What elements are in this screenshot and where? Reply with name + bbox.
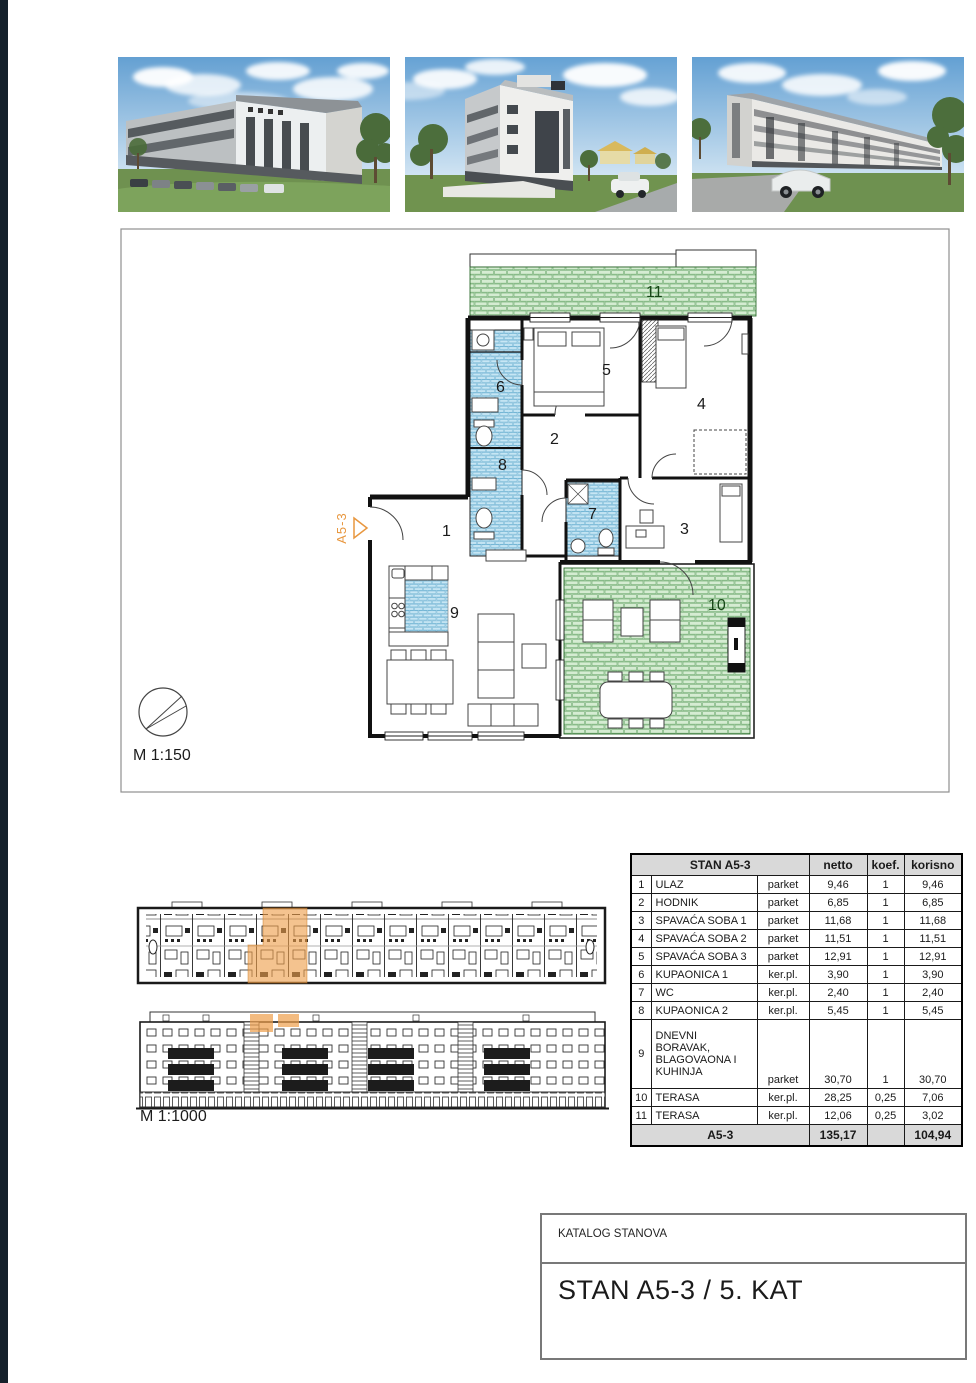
- building-render-photo-3: [692, 57, 964, 212]
- room-label-8: 8: [498, 457, 507, 474]
- total-korisno: 104,94: [904, 1125, 962, 1147]
- table-row: 8KUPAONICA 2ker.pl.5,4515,45: [631, 1002, 962, 1020]
- building-render-photo-2: [405, 57, 677, 212]
- unit-marker-label: A5-3: [334, 512, 349, 543]
- col-koef: koef.: [867, 854, 904, 876]
- page-edge-bar: [0, 0, 8, 1383]
- render-2-scene: [405, 57, 677, 212]
- area-table: STAN A5-3 netto koef. korisno 1ULAZparke…: [630, 853, 963, 1147]
- room-label-9: 9: [450, 605, 459, 622]
- table-row: 9DNEVNI BORAVAK, BLAGOVAONA I KUHINJApar…: [631, 1020, 962, 1089]
- table-row: 2HODNIKparket6,8516,85: [631, 894, 962, 912]
- room-label-11: 11: [646, 284, 663, 301]
- table-row: 6KUPAONICA 1ker.pl.3,9013,90: [631, 966, 962, 984]
- table-row: 11TERASAker.pl.12,060,253,02: [631, 1107, 962, 1125]
- render-1-scene: [118, 57, 390, 212]
- total-label: A5-3: [631, 1125, 809, 1147]
- floorplan-scale-label: M 1:150: [133, 747, 191, 764]
- siteplan-scale-label: M 1:1000: [140, 1108, 207, 1126]
- table-row: 5SPAVAĆA SOBA 3parket12,91112,91: [631, 948, 962, 966]
- render-3-scene: [692, 57, 964, 212]
- title-block-divider: [542, 1262, 965, 1264]
- total-koef-empty: [867, 1125, 904, 1147]
- siteplan-elevation: [136, 1012, 609, 1109]
- room-label-6: 6: [496, 379, 505, 396]
- room-label-5: 5: [602, 362, 611, 379]
- table-row: 7WCker.pl.2,4012,40: [631, 984, 962, 1002]
- room-label-10: 10: [708, 597, 726, 614]
- catalog-page: 1 2 3 4 5 6 7 8 9 10 11 A5-3 M 1:150: [0, 0, 976, 1383]
- table-row: 10TERASAker.pl.28,250,257,06: [631, 1089, 962, 1107]
- siteplan-strip: [138, 902, 605, 983]
- catalog-label: KATALOG STANOVA: [558, 1228, 667, 1240]
- col-korisno: korisno: [904, 854, 962, 876]
- unit-highlight-elevation: [250, 1014, 273, 1032]
- table-row: 1ULAZparket9,4619,46: [631, 876, 962, 894]
- table-title: STAN A5-3: [631, 854, 809, 876]
- floor-plan-drawing: 1 2 3 4 5 6 7 8 9 10 11 A5-3 M 1:150: [120, 228, 950, 793]
- room-label-2: 2: [550, 431, 559, 448]
- site-plan-drawing: [130, 900, 610, 1135]
- table-row: 4SPAVAĆA SOBA 2parket11,51111,51: [631, 930, 962, 948]
- title-block: KATALOG STANOVA STAN A5-3 / 5. KAT: [540, 1213, 967, 1360]
- table-total-row: A5-3 135,17 104,94: [631, 1125, 962, 1147]
- room-label-7: 7: [588, 506, 597, 523]
- total-netto: 135,17: [809, 1125, 867, 1147]
- table-header-row: STAN A5-3 netto koef. korisno: [631, 854, 962, 876]
- room-label-4: 4: [697, 396, 706, 413]
- col-netto: netto: [809, 854, 867, 876]
- table-row: 3SPAVAĆA SOBA 1parket11,68111,68: [631, 912, 962, 930]
- sheet-title: STAN A5-3 / 5. KAT: [558, 1275, 803, 1306]
- room-label-1: 1: [442, 523, 451, 540]
- terrace-11: [470, 250, 756, 316]
- room-label-3: 3: [680, 521, 689, 538]
- building-render-photo-1: [118, 57, 390, 212]
- terrace-10: [560, 564, 754, 738]
